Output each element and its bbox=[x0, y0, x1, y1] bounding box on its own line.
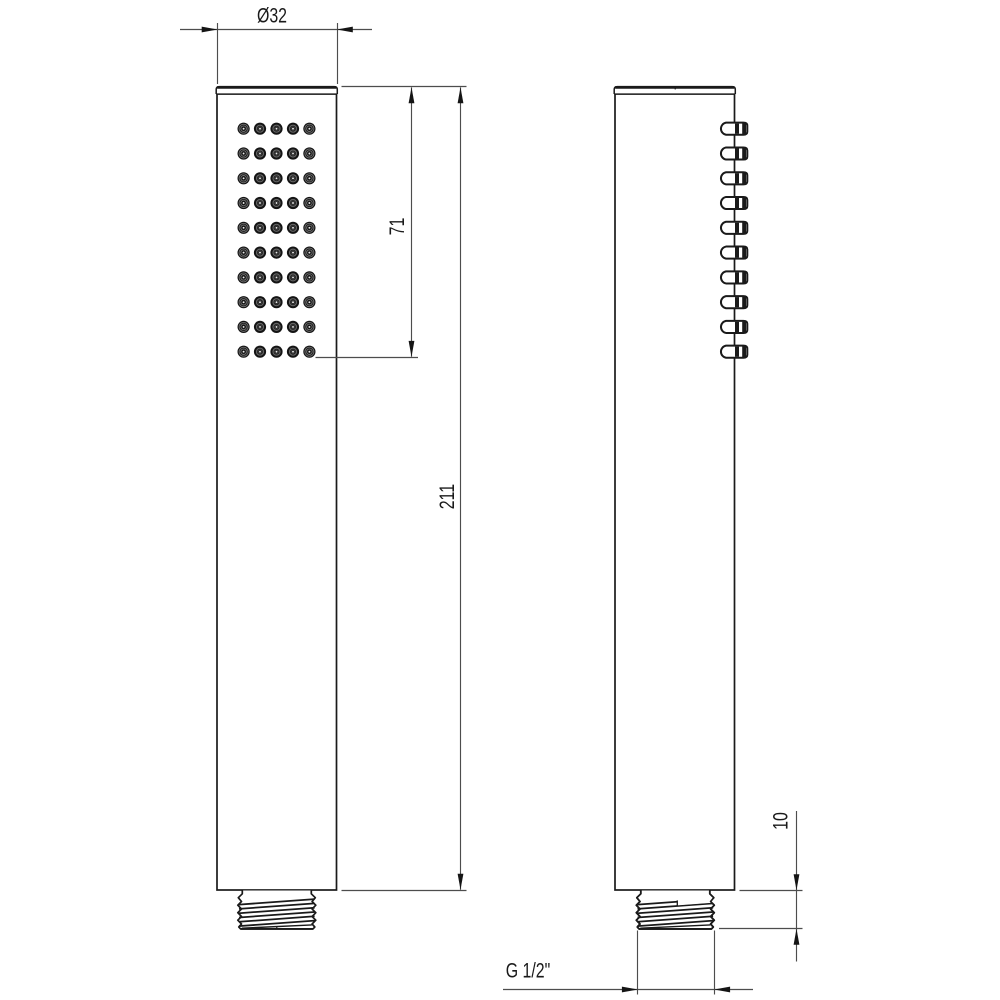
svg-text:71: 71 bbox=[386, 218, 410, 236]
svg-text:G 1/2": G 1/2" bbox=[506, 959, 551, 983]
svg-text:211: 211 bbox=[436, 484, 460, 509]
svg-text:10: 10 bbox=[769, 812, 793, 830]
svg-text:Ø32: Ø32 bbox=[257, 4, 287, 28]
